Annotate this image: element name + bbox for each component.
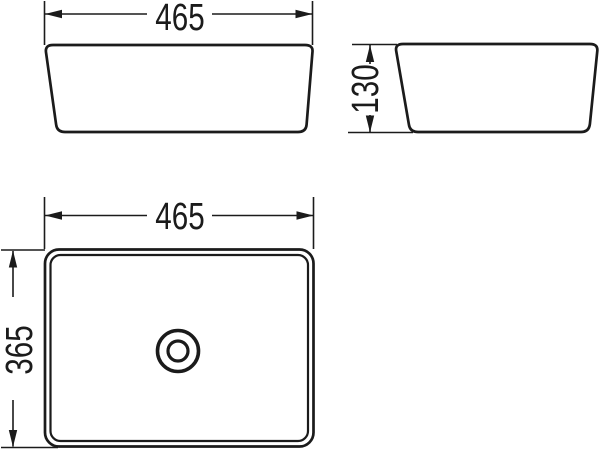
drain-hole (158, 331, 199, 372)
drawing-linework (0, 0, 600, 452)
top-arrow-left (45, 211, 62, 219)
depth-arrow-down (9, 430, 17, 447)
top-view (45, 250, 314, 447)
front-width-value: 465 (155, 0, 204, 37)
top-arrow-right (297, 211, 314, 219)
top-width-value: 465 (155, 198, 204, 236)
front-arrow-right (296, 10, 313, 18)
top-view-inner-rim (51, 255, 309, 441)
side-arrow-down (366, 116, 374, 133)
top-depth-value: 365 (1, 325, 39, 374)
front-view-body (46, 45, 313, 132)
front-arrow-left (45, 10, 62, 18)
side-arrow-up (366, 45, 374, 62)
top-view-outer-rim (45, 250, 314, 447)
side-height-value: 130 (347, 64, 385, 113)
side-view (396, 44, 597, 132)
side-view-body (396, 44, 597, 132)
drain-outer-circle (158, 331, 199, 372)
technical-drawing: 465 130 465 365 (0, 0, 600, 452)
drain-inner-circle (168, 341, 188, 361)
front-view (46, 45, 313, 132)
depth-arrow-up (9, 251, 17, 268)
